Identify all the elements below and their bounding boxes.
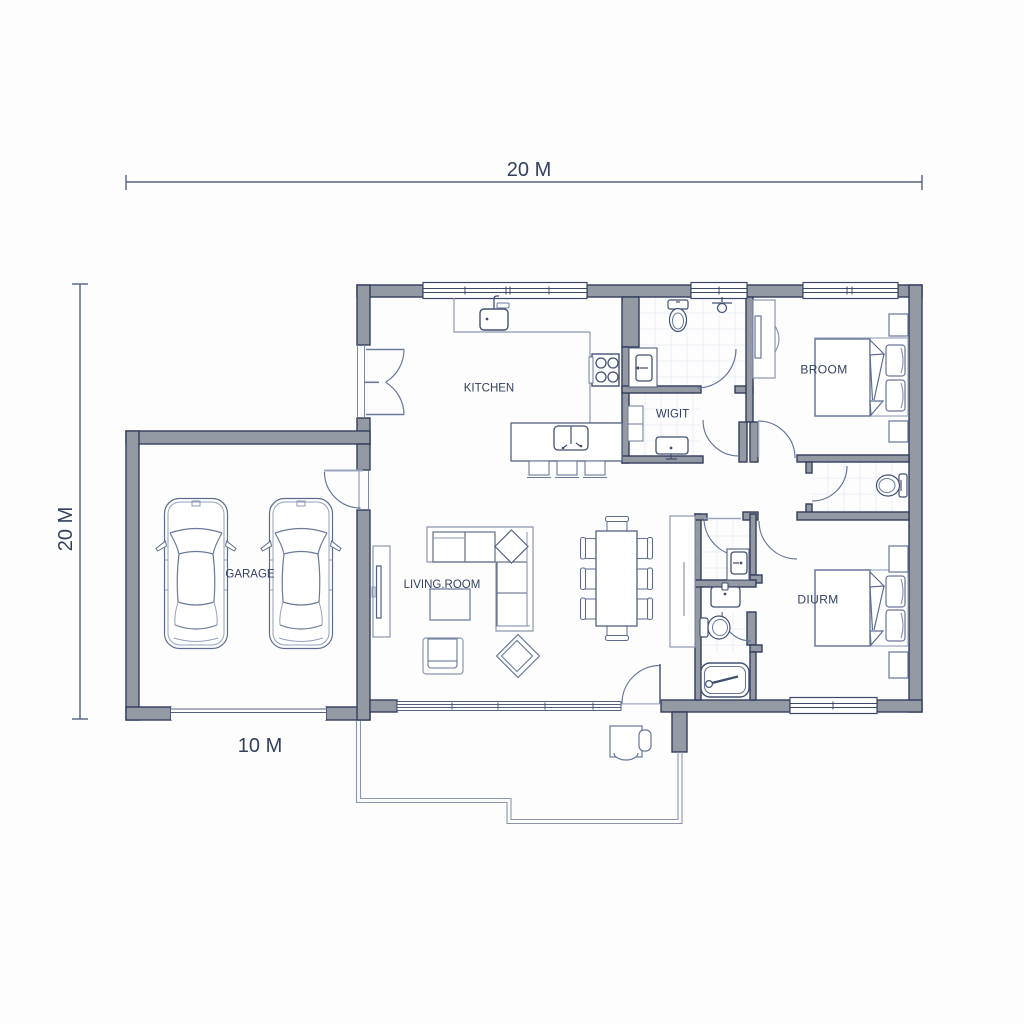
svg-text:20 M: 20 M xyxy=(55,507,77,551)
svg-text:10 M: 10 M xyxy=(238,735,282,757)
svg-text:20 M: 20 M xyxy=(507,159,551,181)
svg-text:BROOM: BROOM xyxy=(800,363,847,377)
svg-text:DIURM: DIURM xyxy=(797,593,838,607)
svg-text:KITCHEN: KITCHEN xyxy=(464,383,514,395)
svg-text:GARAGE: GARAGE xyxy=(225,569,275,581)
svg-text:WIGIT: WIGIT xyxy=(656,409,689,421)
svg-text:LIVING.ROOM: LIVING.ROOM xyxy=(404,579,481,591)
